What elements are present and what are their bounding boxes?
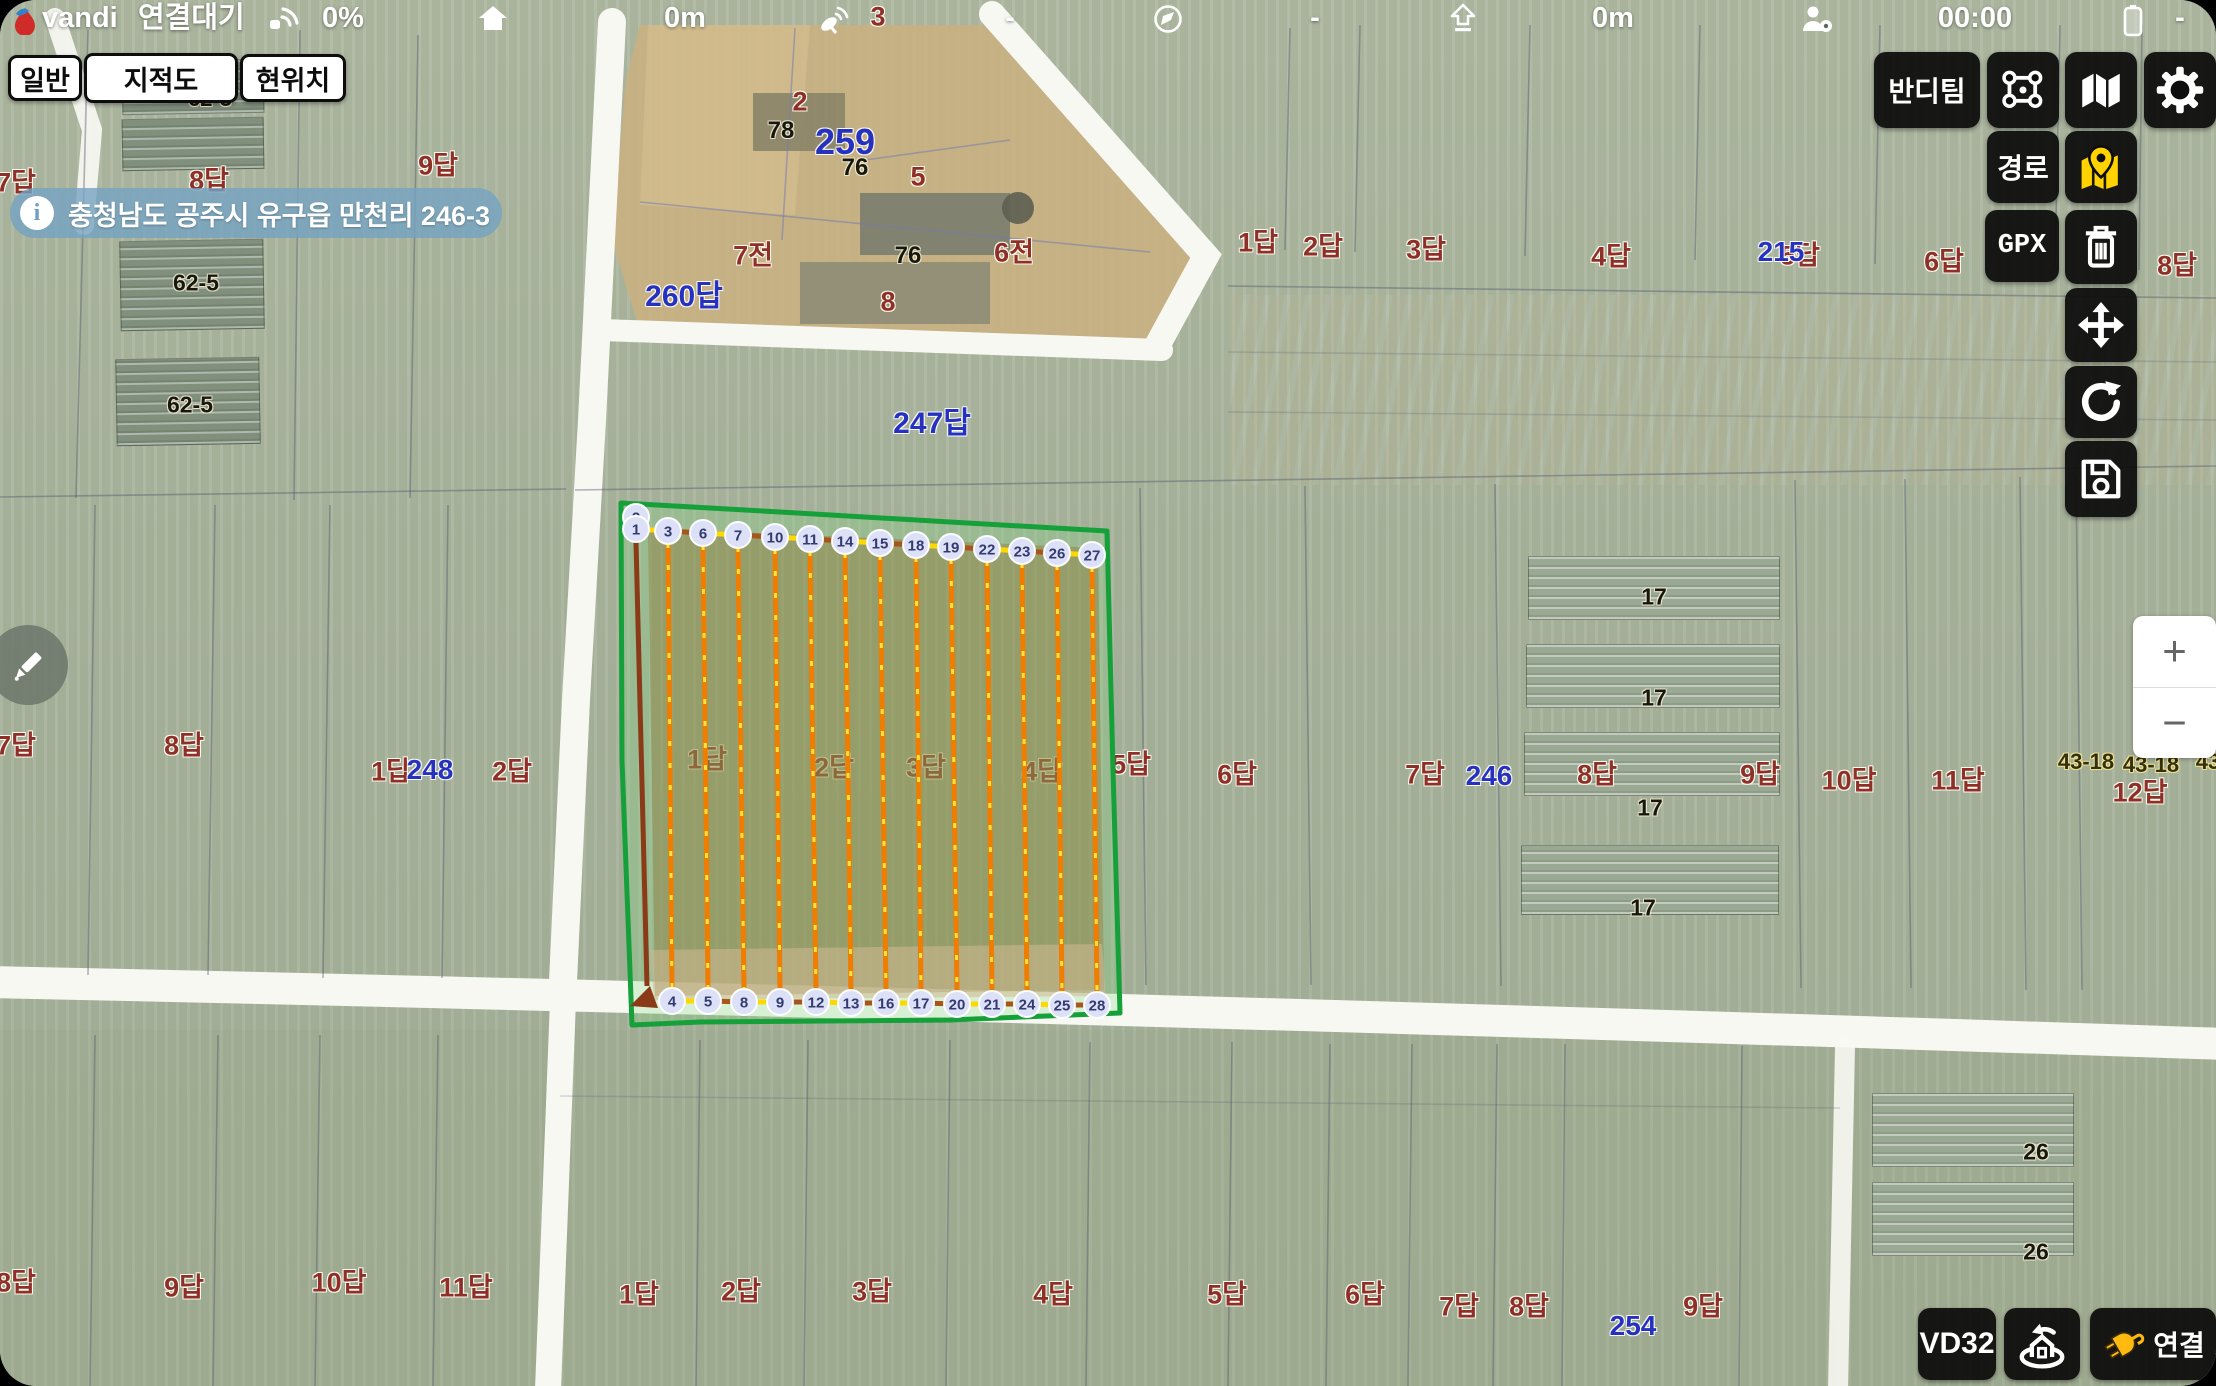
status-bar: vandi 연결대기 0% 0m - - 0m xyxy=(0,0,2216,38)
waypoint-marker[interactable]: 28 xyxy=(1084,992,1110,1018)
save-button[interactable] xyxy=(2065,441,2137,517)
map-pin-icon xyxy=(2077,145,2125,189)
svg-text:1: 1 xyxy=(632,521,640,538)
map-view-button[interactable] xyxy=(2065,52,2137,128)
svg-text:4: 4 xyxy=(668,993,677,1010)
save-icon xyxy=(2078,456,2124,502)
svg-text:19: 19 xyxy=(943,539,960,556)
connect-label: 연결 xyxy=(2153,1324,2205,1364)
svg-text:16: 16 xyxy=(878,995,895,1012)
svg-text:9: 9 xyxy=(776,994,784,1011)
waypoint-marker[interactable]: 26 xyxy=(1044,540,1070,566)
brand-text: vandi xyxy=(42,1,118,35)
svg-text:7: 7 xyxy=(734,527,742,544)
waypoint-marker[interactable]: 8 xyxy=(731,989,757,1015)
waypoint-marker[interactable]: 13 xyxy=(838,990,864,1016)
battery-percent: 0% xyxy=(322,1,364,35)
move-button[interactable] xyxy=(2065,288,2137,362)
gpx-button[interactable]: GPX xyxy=(1985,210,2059,282)
svg-text:11: 11 xyxy=(802,531,818,548)
route-button[interactable]: 경로 xyxy=(1987,131,2059,203)
waypoint-marker[interactable]: 27 xyxy=(1079,542,1105,568)
model-button[interactable]: VD32 xyxy=(1918,1308,1996,1380)
zoom-in-button[interactable]: + xyxy=(2133,616,2216,688)
svg-text:8: 8 xyxy=(740,994,748,1011)
settings-button[interactable] xyxy=(2144,52,2216,128)
waypoint-marker[interactable]: 7 xyxy=(725,522,751,548)
plug-icon xyxy=(2101,1325,2145,1363)
connect-button[interactable]: 연결 xyxy=(2090,1308,2216,1380)
waypoint-marker[interactable]: 21 xyxy=(979,991,1005,1017)
vandi-logo-icon xyxy=(12,5,38,35)
waypoint-marker[interactable]: 5 xyxy=(695,988,721,1014)
metric-dash: - xyxy=(1005,1,1015,35)
svg-text:17: 17 xyxy=(913,995,930,1012)
address-text: 충청남도 공주시 유구읍 만천리 246-3 xyxy=(68,194,490,233)
svg-text:28: 28 xyxy=(1089,997,1106,1014)
svg-text:23: 23 xyxy=(1014,543,1031,560)
waypoint-marker[interactable]: 10 xyxy=(762,524,788,550)
svg-text:5: 5 xyxy=(704,993,712,1010)
svg-text:10: 10 xyxy=(767,529,784,546)
svg-text:22: 22 xyxy=(979,541,996,558)
battery-icon xyxy=(2122,3,2144,37)
home-icon xyxy=(477,3,509,33)
svg-text:24: 24 xyxy=(1019,996,1036,1013)
address-banner[interactable]: i 충청남도 공주시 유구읍 만천리 246-3 xyxy=(10,188,502,238)
altitude: 0m xyxy=(1592,1,1634,35)
boundary-edit-button[interactable] xyxy=(1987,52,2059,128)
map-type-cadastral-button[interactable]: 지적도 xyxy=(84,53,238,103)
svg-text:26: 26 xyxy=(1049,545,1066,562)
pencil-icon xyxy=(8,645,48,685)
gear-icon xyxy=(2156,66,2204,114)
waypoint-marker[interactable]: 9 xyxy=(767,989,793,1015)
waypoint-marker[interactable]: 1 xyxy=(623,516,649,542)
waypoint-marker[interactable]: 19 xyxy=(938,534,964,560)
delete-button[interactable] xyxy=(2065,210,2137,284)
trash-icon xyxy=(2079,223,2123,271)
waypoint-marker[interactable]: 3 xyxy=(655,518,681,544)
spray-area xyxy=(648,528,1104,996)
svg-text:25: 25 xyxy=(1054,997,1071,1014)
waypoint-marker[interactable]: 6 xyxy=(690,520,716,546)
svg-text:15: 15 xyxy=(872,535,889,552)
rotate-icon xyxy=(2078,379,2124,425)
waypoint-marker[interactable]: 20 xyxy=(944,991,970,1017)
svg-text:13: 13 xyxy=(843,995,860,1012)
compass-dash: - xyxy=(1310,1,1320,35)
svg-text:21: 21 xyxy=(984,996,1001,1013)
svg-text:27: 27 xyxy=(1084,547,1101,564)
waypoint-marker[interactable]: 22 xyxy=(974,536,1000,562)
svg-text:18: 18 xyxy=(908,537,925,554)
home-distance: 0m xyxy=(664,1,706,35)
svg-text:12: 12 xyxy=(808,994,825,1011)
svg-text:3: 3 xyxy=(664,523,672,540)
map-screen[interactable]: 362-37답8답9답62-562-52782597657전766전260답82… xyxy=(0,0,2216,1386)
pilot-icon xyxy=(1800,3,1834,35)
return-home-button[interactable] xyxy=(2004,1308,2080,1380)
waypoint-marker[interactable]: 11 xyxy=(797,526,823,552)
waypoint-marker[interactable]: 23 xyxy=(1009,538,1035,564)
satellite-icon xyxy=(816,3,850,35)
waypoint-marker[interactable]: 17 xyxy=(908,990,934,1016)
rotate-button[interactable] xyxy=(2065,366,2137,438)
waypoint-marker[interactable]: 24 xyxy=(1014,991,1040,1017)
return-home-icon xyxy=(2016,1319,2068,1369)
waypoint-marker[interactable]: 4 xyxy=(659,988,685,1014)
ascend-icon xyxy=(1448,3,1478,35)
waypoint-marker[interactable]: 18 xyxy=(903,532,929,558)
map-pin-button[interactable] xyxy=(2065,131,2137,203)
move-icon xyxy=(2078,302,2124,348)
svg-text:14: 14 xyxy=(837,533,854,550)
compass-icon xyxy=(1152,3,1184,35)
zoom-control: + − xyxy=(2133,616,2216,758)
map-type-general-button[interactable]: 일반 xyxy=(8,55,82,101)
waypoint-marker[interactable]: 14 xyxy=(832,528,858,554)
svg-text:20: 20 xyxy=(949,996,966,1013)
waypoint-marker[interactable]: 25 xyxy=(1049,992,1075,1018)
info-icon: i xyxy=(20,196,54,230)
waypoint-marker[interactable]: 12 xyxy=(803,989,829,1015)
connection-state: 연결대기 xyxy=(138,1,245,35)
waypoint-marker[interactable]: 15 xyxy=(867,530,893,556)
svg-text:6: 6 xyxy=(699,525,707,542)
current-location-button[interactable]: 현위치 xyxy=(240,54,346,102)
flight-time: 00:00 xyxy=(1938,1,2012,35)
zoom-out-button[interactable]: − xyxy=(2133,688,2216,759)
signal-icon xyxy=(268,3,300,33)
battery-dash: - xyxy=(2175,1,2185,35)
polygon-nodes-icon xyxy=(2000,68,2046,112)
team-button[interactable]: 반디팀 xyxy=(1874,52,1980,128)
map-icon xyxy=(2077,70,2125,110)
waypoint-marker[interactable]: 16 xyxy=(873,990,899,1016)
